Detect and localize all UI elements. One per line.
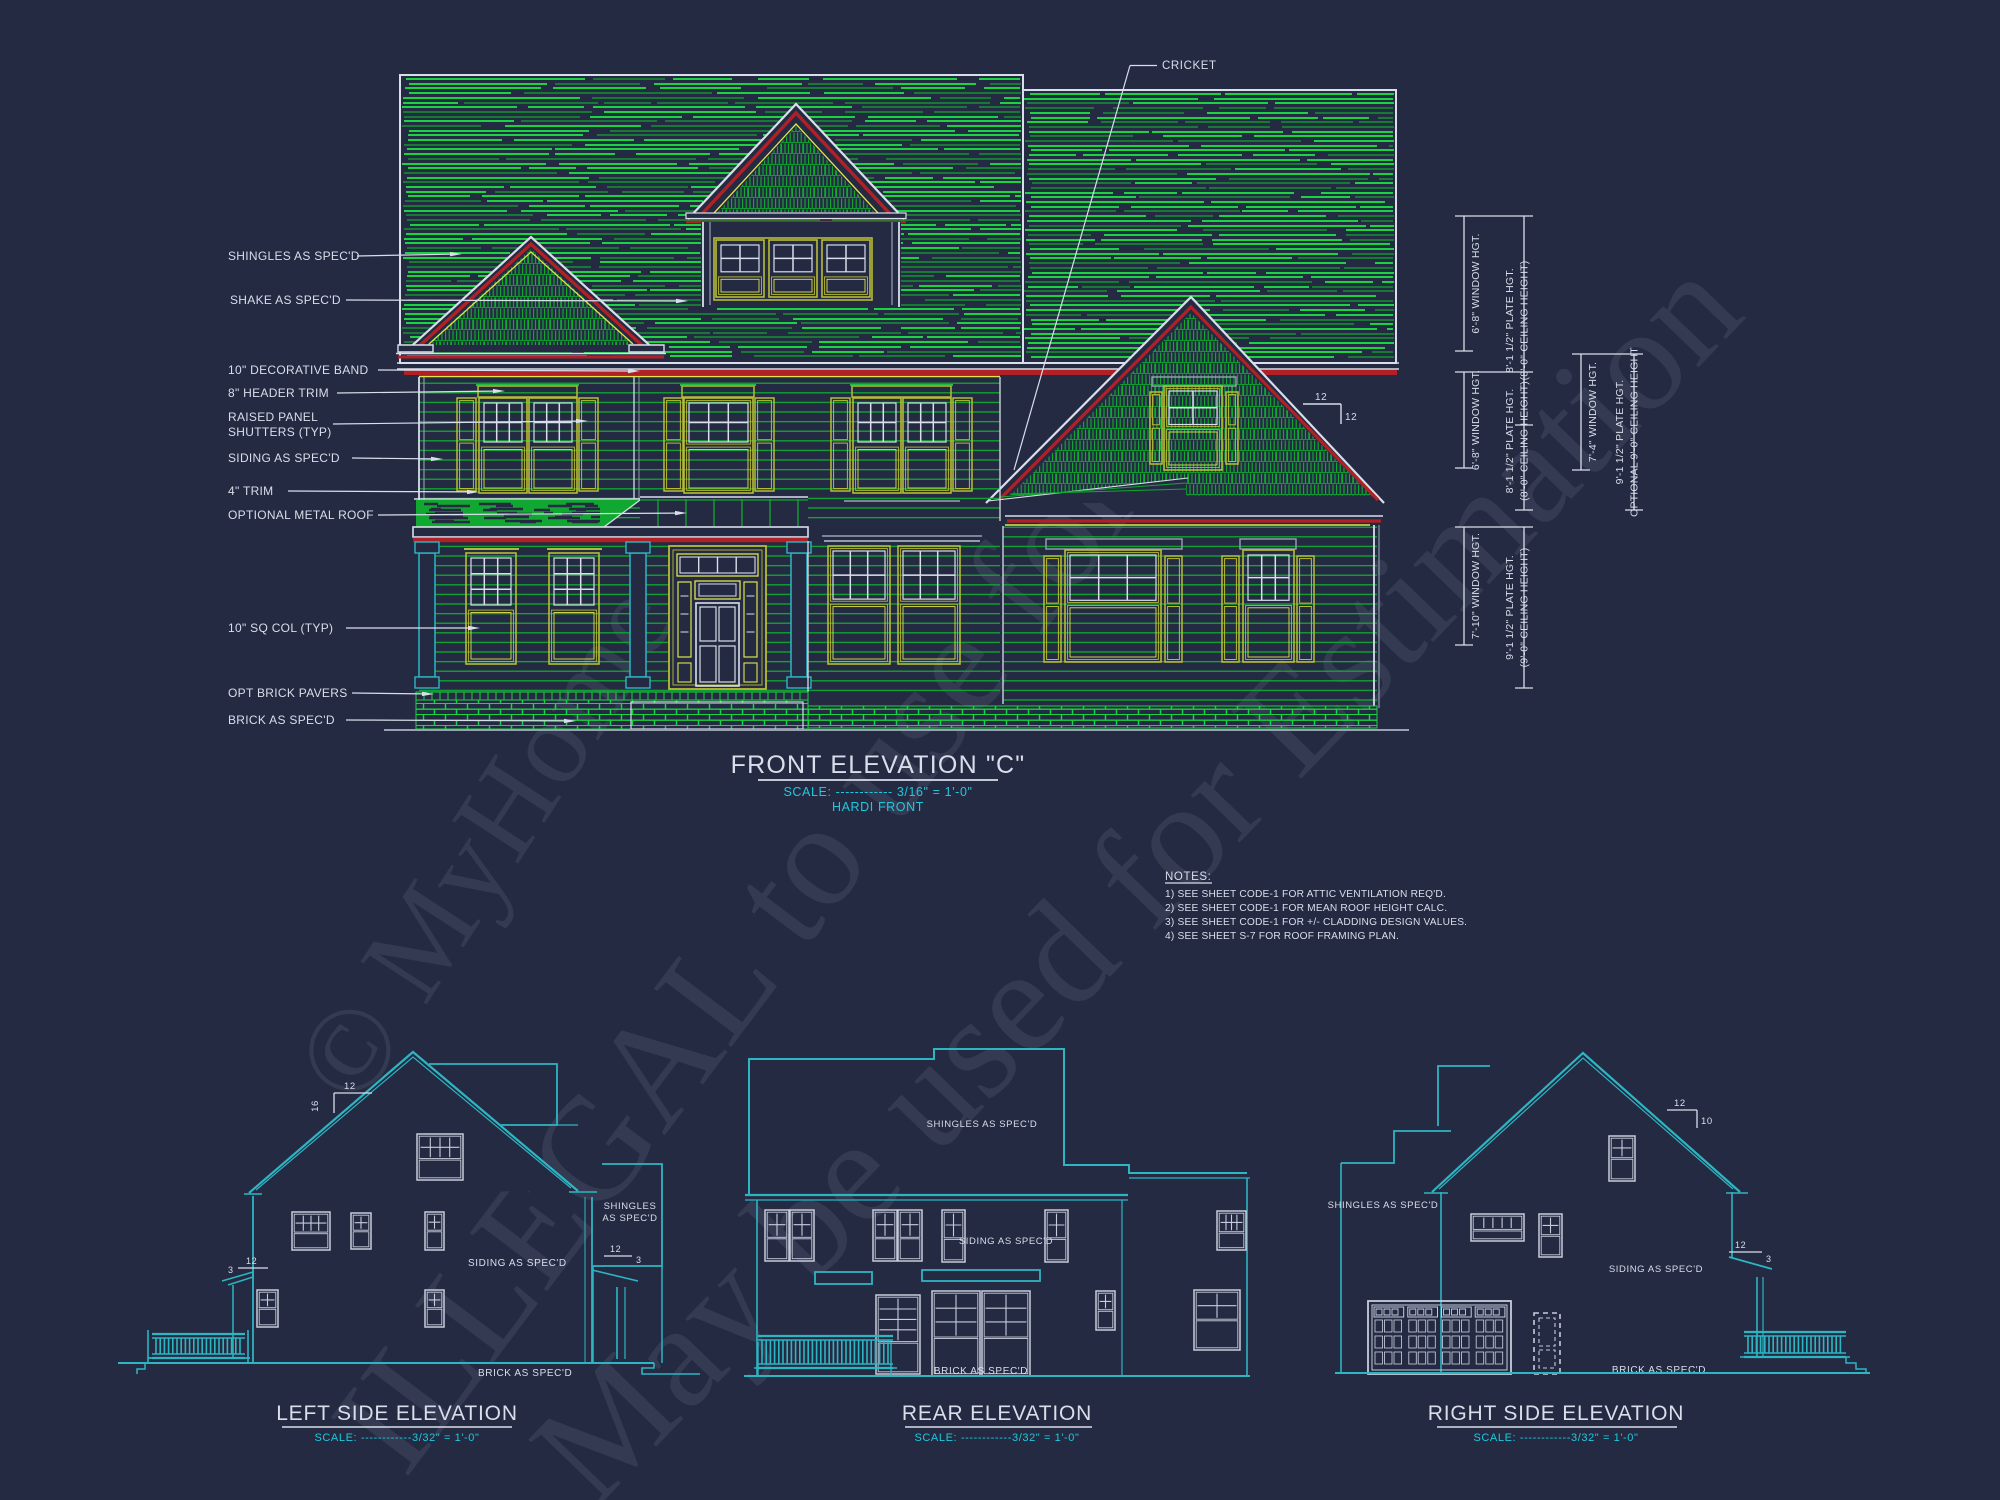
svg-text:(8'-0" CEILING HEIGHT): (8'-0" CEILING HEIGHT) (1519, 381, 1531, 501)
svg-text:12: 12 (610, 1244, 621, 1254)
svg-text:SCALE: ------------ 3/16" = 1': SCALE: ------------ 3/16" = 1'-0" (783, 785, 972, 799)
svg-text:SHUTTERS (TYP): SHUTTERS (TYP) (228, 425, 332, 439)
svg-text:10" SQ COL (TYP): 10" SQ COL (TYP) (228, 621, 333, 635)
svg-text:SHINGLES AS SPEC'D: SHINGLES AS SPEC'D (1328, 1200, 1439, 1211)
svg-text:AS SPEC'D: AS SPEC'D (602, 1213, 657, 1224)
svg-text:10: 10 (1701, 1116, 1713, 1127)
svg-text:8" HEADER TRIM: 8" HEADER TRIM (228, 386, 329, 400)
svg-text:OPTIONAL 9'-0" CEILING HEIGHT: OPTIONAL 9'-0" CEILING HEIGHT (1629, 347, 1641, 517)
svg-text:4" TRIM: 4" TRIM (228, 484, 273, 498)
svg-text:NOTES:: NOTES: (1165, 871, 1211, 883)
svg-text:SIDING AS SPEC'D: SIDING AS SPEC'D (228, 451, 340, 465)
svg-text:12: 12 (1345, 412, 1357, 423)
svg-text:12: 12 (1735, 1240, 1746, 1250)
svg-text:BRICK AS SPEC'D: BRICK AS SPEC'D (228, 713, 335, 727)
svg-text:9'-1 1/2" PLATE HGT.: 9'-1 1/2" PLATE HGT. (1614, 380, 1626, 485)
svg-text:SHINGLES AS SPEC'D: SHINGLES AS SPEC'D (927, 1119, 1038, 1130)
svg-text:BRICK AS SPEC'D: BRICK AS SPEC'D (478, 1368, 572, 1379)
svg-text:(8'-0" CEILING HEIGHT): (8'-0" CEILING HEIGHT) (1519, 261, 1531, 381)
svg-text:7'-4" WINDOW HGT.: 7'-4" WINDOW HGT. (1587, 362, 1599, 462)
svg-text:SIDING AS SPEC'D: SIDING AS SPEC'D (468, 1258, 567, 1269)
svg-text:3: 3 (1766, 1254, 1772, 1264)
svg-text:SIDING AS SPEC'D: SIDING AS SPEC'D (1609, 1264, 1703, 1275)
svg-text:12: 12 (1674, 1098, 1686, 1109)
svg-text:BRICK AS SPEC'D: BRICK AS SPEC'D (1612, 1365, 1706, 1376)
svg-text:SIDING AS SPEC'D: SIDING AS SPEC'D (959, 1236, 1053, 1247)
svg-text:3: 3 (228, 1265, 234, 1275)
svg-text:SHINGLES AS SPEC'D: SHINGLES AS SPEC'D (228, 249, 360, 263)
svg-text:8'-1 1/2" PLATE HGT.: 8'-1 1/2" PLATE HGT. (1504, 389, 1516, 494)
svg-text:3: 3 (636, 1255, 642, 1265)
svg-text:2) SEE SHEET CODE-1 FOR MEAN: 2) SEE SHEET CODE-1 FOR MEAN ROOF HEIGHT… (1165, 903, 1447, 914)
svg-text:6'-8" WINDOW HGT.: 6'-8" WINDOW HGT. (1470, 370, 1482, 470)
svg-text:OPTIONAL METAL ROOF: OPTIONAL METAL ROOF (228, 508, 374, 522)
svg-text:12: 12 (1315, 392, 1327, 403)
svg-text:1) SEE SHEET CODE-1 FOR ATTIC: 1) SEE SHEET CODE-1 FOR ATTIC VENTILATIO… (1165, 889, 1446, 900)
svg-text:LEFT SIDE ELEVATION: LEFT SIDE ELEVATION (276, 1402, 518, 1425)
svg-text:SCALE: ------------3/32" = 1'-: SCALE: ------------3/32" = 1'-0" (314, 1432, 479, 1444)
svg-text:RAISED PANEL: RAISED PANEL (228, 410, 318, 424)
svg-text:10" DECORATIVE BAND: 10" DECORATIVE BAND (228, 363, 368, 377)
svg-text:OPT BRICK PAVERS: OPT BRICK PAVERS (228, 686, 348, 700)
svg-text:SHINGLES: SHINGLES (604, 1201, 657, 1212)
svg-text:REAR ELEVATION: REAR ELEVATION (902, 1402, 1092, 1425)
svg-text:SHAKE AS SPEC'D: SHAKE AS SPEC'D (230, 293, 341, 307)
svg-text:4) SEE SHEET S-7 FOR ROOF FRA: 4) SEE SHEET S-7 FOR ROOF FRAMING PLAN. (1165, 931, 1399, 942)
svg-text:SCALE: ------------3/32" = 1'-: SCALE: ------------3/32" = 1'-0" (914, 1432, 1079, 1444)
svg-text:SCALE: ------------3/32" = 1'-: SCALE: ------------3/32" = 1'-0" (1473, 1432, 1638, 1444)
svg-text:3) SEE SHEET CODE-1 FOR +/- C: 3) SEE SHEET CODE-1 FOR +/- CLADDING DES… (1165, 917, 1467, 928)
svg-text:16: 16 (310, 1100, 321, 1112)
svg-text:12: 12 (246, 1256, 257, 1266)
svg-text:CRICKET: CRICKET (1162, 60, 1217, 72)
svg-text:6'-8" WINDOW HGT.: 6'-8" WINDOW HGT. (1470, 233, 1482, 333)
svg-text:7'-10" WINDOW HGT.: 7'-10" WINDOW HGT. (1470, 533, 1482, 639)
svg-text:RIGHT SIDE ELEVATION: RIGHT SIDE ELEVATION (1428, 1402, 1684, 1425)
svg-text:(9'-0" CEILING HEIGHT): (9'-0" CEILING HEIGHT) (1519, 548, 1531, 668)
svg-text:FRONT ELEVATION "C": FRONT ELEVATION "C" (731, 751, 1026, 779)
svg-text:8'-1 1/2" PLATE HGT.: 8'-1 1/2" PLATE HGT. (1504, 268, 1516, 373)
svg-text:HARDI FRONT: HARDI FRONT (832, 800, 924, 814)
svg-text:12: 12 (344, 1081, 356, 1092)
svg-text:9'-1 1/2" PLATE HGT.: 9'-1 1/2" PLATE HGT. (1504, 555, 1516, 660)
